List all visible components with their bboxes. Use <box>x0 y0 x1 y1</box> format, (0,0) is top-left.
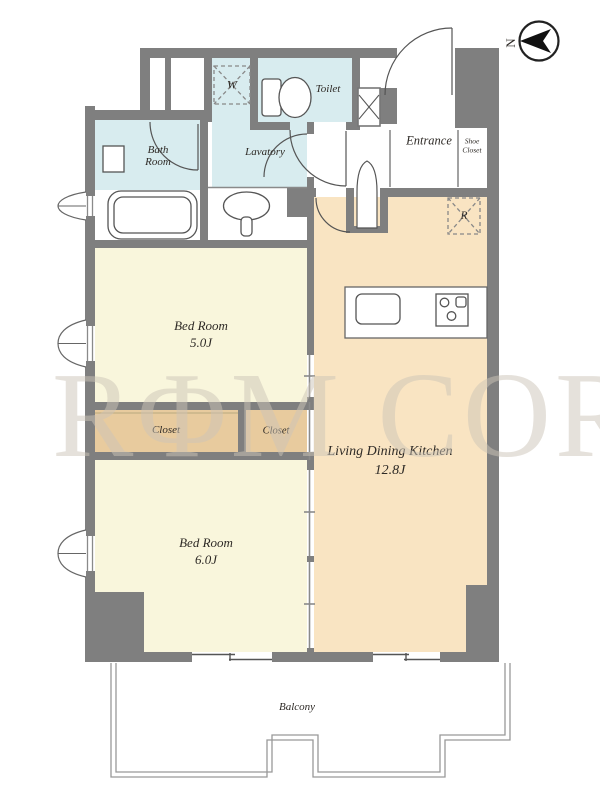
balcony-outline <box>111 663 510 777</box>
stove-icon <box>436 294 468 326</box>
entrance-door-arc <box>385 28 452 95</box>
label-bedroom1-name: Bed Room <box>174 317 228 334</box>
floor-plan: Bath Room Lavatory Toilet Entrance Shoe … <box>0 0 600 800</box>
label-bedroom2-name: Bed Room <box>179 534 233 551</box>
pipe-shaft-icon <box>358 88 380 126</box>
ldk-door-leaf <box>357 161 377 228</box>
label-closet2: Closet <box>263 426 290 437</box>
window-bedroom1 <box>58 320 95 367</box>
label-shoe-closet: Shoe Closet <box>456 138 488 155</box>
label-ldk-size: 12.8J <box>327 461 452 480</box>
toilet-icon <box>262 78 311 118</box>
label-bath-room: Bath Room <box>134 144 182 168</box>
label-fridge: R <box>460 210 467 222</box>
label-washer: W <box>227 78 237 93</box>
label-shoe-closet-line2: Closet <box>456 146 488 155</box>
label-closet1: Closet <box>152 424 180 436</box>
label-lavatory: Lavatory <box>245 146 285 158</box>
kitchen-counter <box>345 287 487 338</box>
label-bedroom1: Bed Room 5.0J <box>174 317 228 351</box>
floor-plan-drawing <box>0 0 600 800</box>
label-toilet: Toilet <box>316 83 341 95</box>
window-bedroom2 <box>58 530 95 577</box>
label-bedroom2-size: 6.0J <box>179 551 233 568</box>
washbasin-icon <box>224 192 270 220</box>
label-bedroom2: Bed Room 6.0J <box>179 534 233 568</box>
bath-counter-icon <box>103 146 124 172</box>
ldk-area <box>314 197 487 652</box>
label-north: N <box>503 38 519 47</box>
label-entrance: Entrance <box>406 134 452 149</box>
compass-icon <box>520 22 559 61</box>
label-ldk: Living Dining Kitchen 12.8J <box>327 442 452 480</box>
window-bath <box>58 192 95 220</box>
label-bedroom1-size: 5.0J <box>174 334 228 351</box>
label-balcony: Balcony <box>279 701 315 713</box>
kitchen-sink-icon <box>356 294 400 324</box>
label-ldk-name: Living Dining Kitchen <box>327 442 452 461</box>
